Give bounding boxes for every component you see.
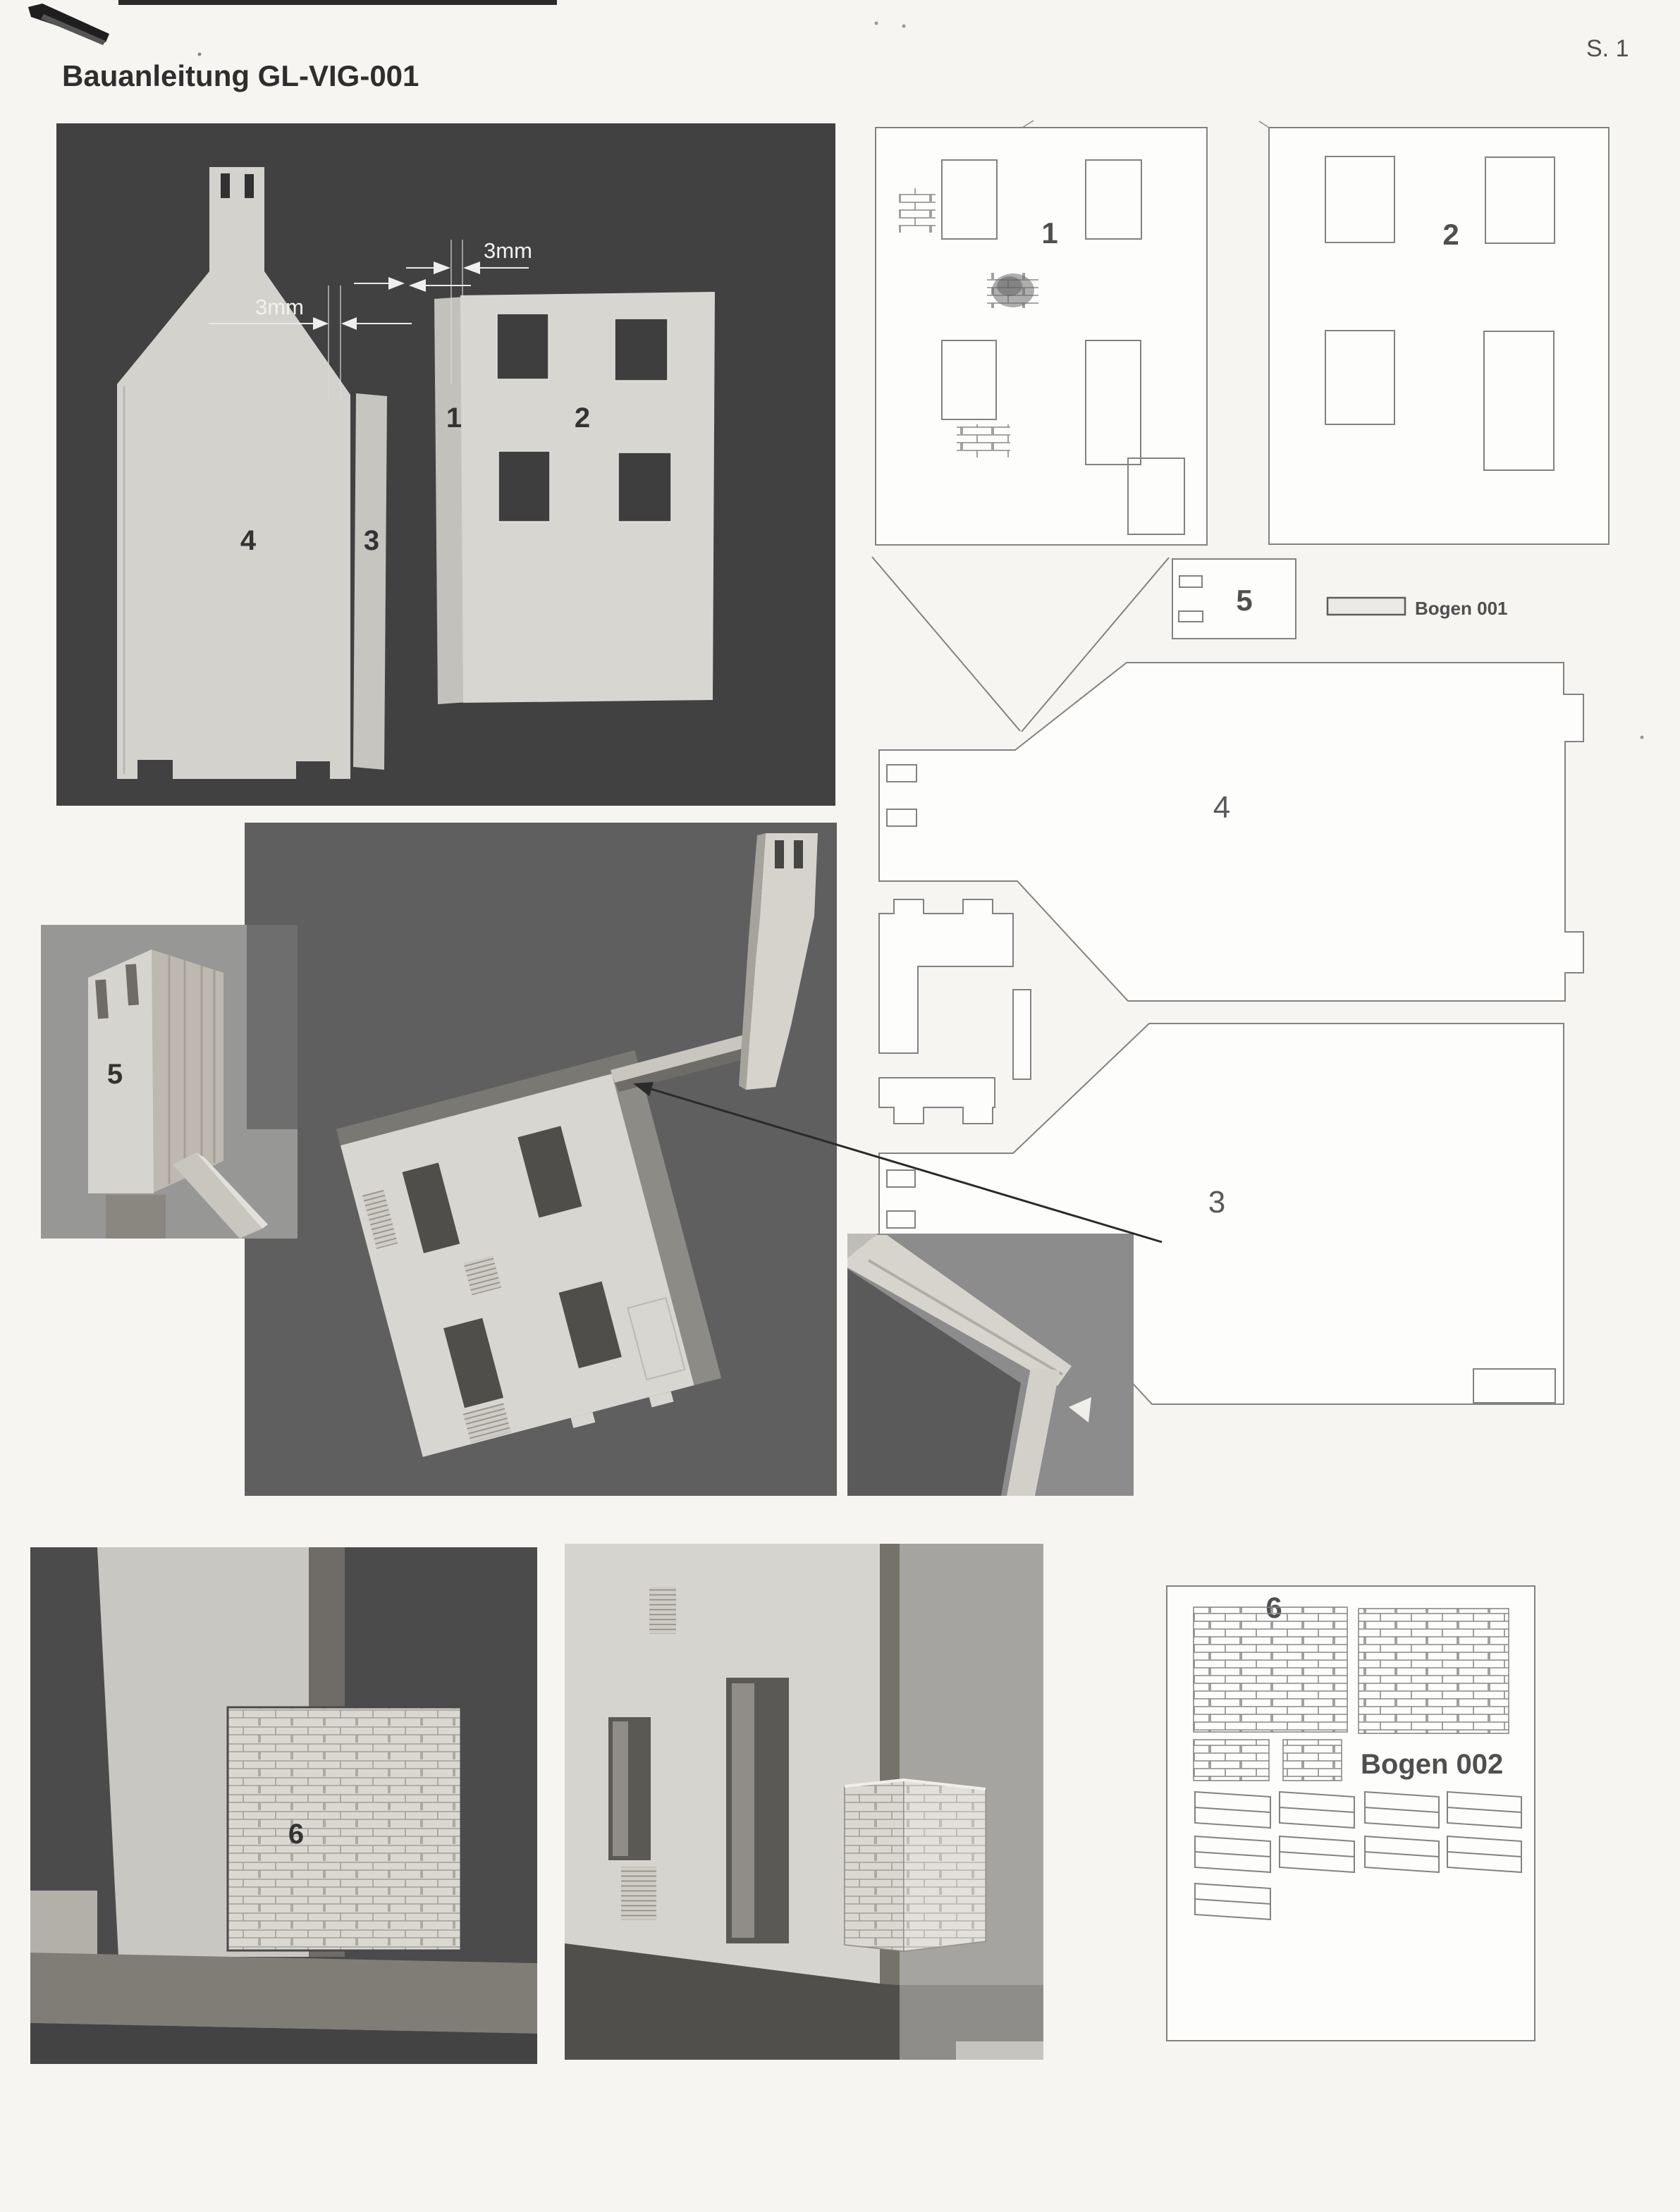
brick-patch-drawing xyxy=(899,188,936,233)
bogen-001-swatch xyxy=(1328,598,1405,615)
brick-panel xyxy=(1194,1607,1347,1732)
template-outlines xyxy=(879,899,1031,1124)
background-shadow xyxy=(247,925,298,1129)
photo-corner-detail xyxy=(847,1234,1134,1496)
window-reveal xyxy=(613,1721,628,1856)
scan-dot xyxy=(1641,736,1644,739)
brick-square-part6 xyxy=(228,1707,461,1950)
light-patch xyxy=(30,1891,97,1957)
drawing-sheet1-part1: 1 xyxy=(876,121,1207,545)
drawing-sheet1-part2: 2 xyxy=(1259,121,1609,544)
dim-text: 3mm xyxy=(484,238,532,263)
piece-side-face xyxy=(152,950,223,1193)
scan-dot xyxy=(198,53,202,56)
drawing-label-1: 1 xyxy=(1041,216,1057,250)
bogen-001-key: Bogen 001 xyxy=(1328,598,1508,619)
scan-edge-mark xyxy=(118,0,557,5)
label-part6: 6 xyxy=(288,1819,304,1850)
vent-grille xyxy=(649,1587,676,1634)
label-part1: 1 xyxy=(446,403,462,434)
pen-mark xyxy=(28,4,109,42)
brick-base-side-light xyxy=(904,1780,986,1951)
base-notch xyxy=(956,2041,1043,2060)
photo-house-corner xyxy=(565,1544,1043,2060)
door-reveal xyxy=(732,1683,754,1938)
scan-dot xyxy=(902,25,906,28)
drawing-label-4: 4 xyxy=(1213,790,1230,825)
chimney-slot xyxy=(775,840,784,868)
scanned-manual-page: Bauanleitung GL-VIG-001 S. 1 4 3 1 2 3mm xyxy=(0,0,1680,2212)
strip-part3 xyxy=(353,393,387,770)
label-part2: 2 xyxy=(575,403,590,434)
bogen-001-label: Bogen 001 xyxy=(1415,598,1508,619)
label-part3: 3 xyxy=(364,525,379,556)
brick-panel xyxy=(1359,1609,1509,1733)
brick-panel-small xyxy=(1194,1740,1269,1781)
drawing-label-5: 5 xyxy=(1236,584,1252,617)
dim-text: 3mm xyxy=(255,295,304,319)
bogen-002-label: Bogen 002 xyxy=(1361,1749,1503,1780)
drawing-sheet2: 6 Bogen 002 xyxy=(1167,1586,1535,2041)
label-part5: 5 xyxy=(107,1059,123,1090)
brick-panel-small xyxy=(1283,1740,1342,1781)
support-column xyxy=(106,1195,166,1239)
vent-grille xyxy=(621,1867,656,1920)
photo-assembled-house xyxy=(245,823,837,1496)
page-number: S. 1 xyxy=(1586,35,1629,62)
drawing-label-2: 2 xyxy=(1442,218,1459,251)
label-part4: 4 xyxy=(240,525,257,556)
chimney-slot xyxy=(221,173,230,198)
scan-dot xyxy=(875,22,878,25)
chimney-slot xyxy=(794,840,803,868)
photo-chimney-closeup: 5 xyxy=(41,925,298,1239)
brick-base-front xyxy=(845,1780,904,1951)
page-canvas: Bauanleitung GL-VIG-001 S. 1 4 3 1 2 3mm xyxy=(0,0,1680,2212)
floor-band xyxy=(30,1953,537,2034)
photo-brick-piece: 6 xyxy=(30,1547,537,2064)
photo-flat-parts: 4 3 1 2 3mm 3mm xyxy=(56,123,835,806)
chimney-slot xyxy=(245,174,254,198)
drawing-label-3: 3 xyxy=(1208,1185,1225,1219)
drawing-part5: 5 xyxy=(1172,559,1296,639)
brick-patch-drawing xyxy=(957,424,1010,457)
page-title: Bauanleitung GL-VIG-001 xyxy=(62,59,419,92)
smudge-mark xyxy=(997,276,1022,296)
